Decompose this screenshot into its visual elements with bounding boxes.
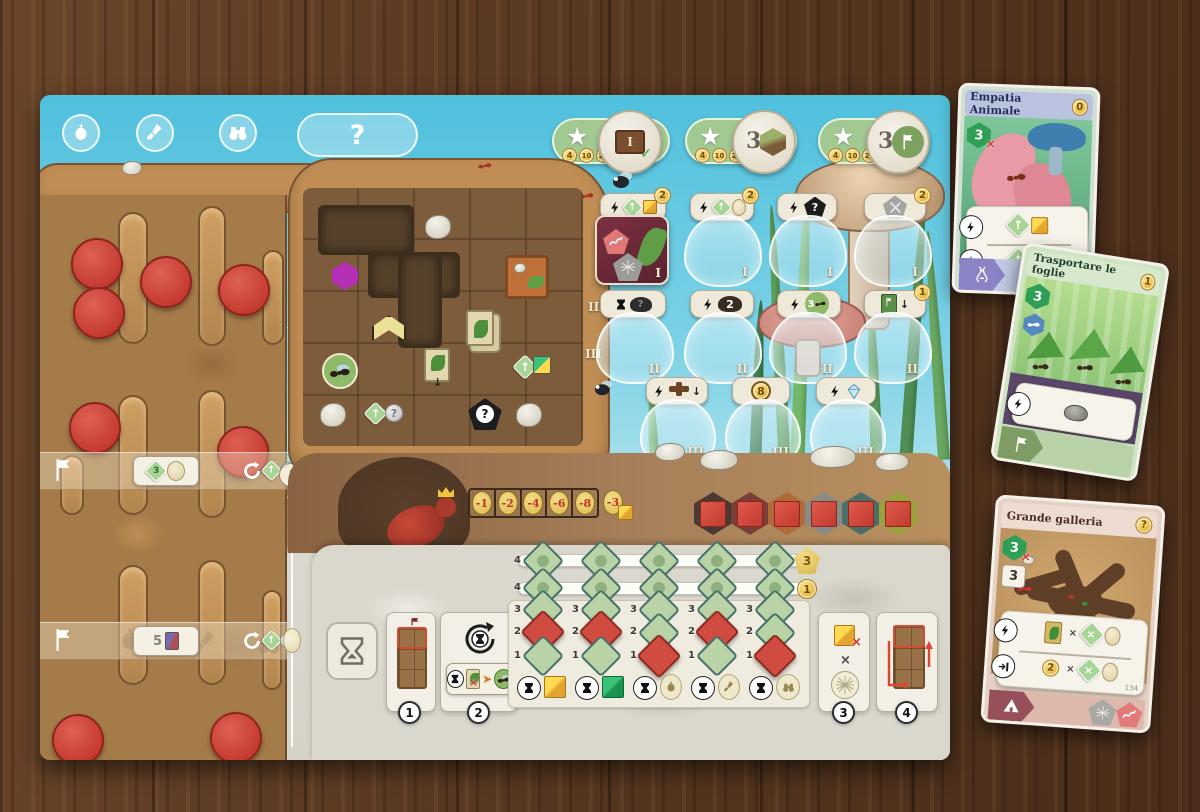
card-title: Grande galleria [1006, 509, 1103, 529]
multiply-sign: × [840, 653, 851, 668]
gem-icon [845, 383, 863, 400]
section-3-panel: × × [818, 612, 870, 712]
hourglass-circle-icon [633, 676, 657, 700]
cocoon-icon [831, 671, 859, 699]
star-icon: ★ [699, 124, 721, 149]
section-4-panel [876, 612, 938, 712]
down-arrow-icon: ↓ [433, 376, 442, 389]
row-value: 1 [630, 650, 637, 661]
fly-icon [592, 377, 616, 397]
slot-numeral: I [912, 265, 918, 279]
card-title: Empatia Animale [970, 90, 1072, 120]
mushroom-stem-blue [1049, 147, 1063, 175]
goal-disc-flags[interactable]: 3 [866, 110, 930, 174]
red-disc-token[interactable] [73, 287, 125, 339]
binoculars-oval-icon [776, 674, 800, 700]
pheromone-pentagon-icon [603, 229, 629, 254]
red-disc-token[interactable] [52, 714, 104, 760]
card-cost-coin: ? [1135, 516, 1153, 534]
rotate-arrow-icon [1016, 583, 1033, 596]
section-2-panel: × ➤ [440, 612, 518, 712]
down-arrow-icon: ↓ [692, 385, 701, 398]
ant-icon [1006, 169, 1026, 184]
cost-coin: 2 [914, 187, 931, 204]
dig-grid[interactable]: ↓ ↑ ↑ ? ? [303, 188, 583, 446]
row-value: 3 [746, 604, 753, 615]
red-tile [811, 501, 837, 527]
bolt-icon [993, 618, 1019, 644]
row-reward-box: 3 [133, 456, 199, 486]
row-value: 4 [514, 555, 521, 566]
penalty-cell[interactable]: -8 [573, 490, 597, 516]
hourglass-circle-icon [575, 676, 599, 700]
winged-ant-token[interactable] [322, 353, 358, 389]
orange-arrow-icon: ➤ [482, 672, 492, 686]
check-icon: ✓ [640, 146, 652, 162]
shovel-action-button[interactable] [136, 114, 174, 152]
row-value: 2 [746, 626, 753, 637]
question-action-button[interactable]: ? [297, 113, 418, 157]
card-footer [987, 689, 1145, 730]
card-slot[interactable]: I [684, 215, 762, 287]
card-cost-coin: 0 [1071, 98, 1088, 116]
x-icon: × [1020, 549, 1031, 564]
tunnel-ant [1082, 602, 1088, 606]
flag-icon [50, 626, 76, 654]
penalty-cell[interactable]: -1 [470, 490, 496, 516]
star-icon: ★ [566, 124, 588, 149]
coin-2: 2 [1042, 659, 1060, 677]
ant-icon [1075, 361, 1095, 376]
penalty-cell[interactable]: -2 [496, 490, 522, 516]
ant-icon [1114, 375, 1134, 390]
question-coin: ? [385, 404, 403, 422]
flagged-grid-card-icon [397, 627, 427, 689]
row-value: 3 [630, 604, 637, 615]
cost-coin: 2 [654, 187, 671, 204]
eggs-icon [167, 461, 185, 481]
yellow-cube-icon [1031, 217, 1048, 234]
goal-disc-card[interactable]: I ✓ [598, 110, 662, 174]
question-icon: ? [476, 405, 494, 423]
card-index: 134 [1124, 684, 1138, 693]
down-arrow-icon: ↓ [900, 298, 909, 311]
two-tone-cube-icon [533, 356, 551, 374]
enter-icon [990, 653, 1016, 679]
divider-line [1019, 650, 1131, 659]
refresh-icon[interactable] [241, 630, 263, 652]
row-value: 4 [514, 582, 521, 593]
slot-numeral: II [822, 362, 833, 376]
excavated-area [318, 205, 414, 255]
stone-cluster [655, 443, 685, 461]
pheromone-pentagon-icon [1115, 701, 1143, 728]
red-disc-token[interactable] [218, 264, 270, 316]
red-tile [774, 501, 800, 527]
row-value: 3 [688, 604, 695, 615]
flag-chevron [997, 426, 1045, 464]
question-icon: ? [350, 120, 366, 151]
house-chevron [987, 689, 1035, 722]
x-icon: × [851, 635, 862, 650]
yellow-cube-icon [643, 200, 657, 214]
tunnel-hex-icon [760, 128, 786, 156]
green-cube-icon [602, 676, 624, 698]
egg-icon [1104, 626, 1121, 646]
penalty-track: -1 -2 -4 -6 -8 [468, 488, 599, 518]
stone-cluster [700, 450, 738, 470]
bolt-icon [702, 297, 715, 312]
row-value: 2 [688, 626, 695, 637]
bolt-icon [653, 384, 666, 399]
row-value: 1 [746, 650, 753, 661]
card-count: 5 [153, 634, 162, 649]
dna-chevron [958, 258, 1005, 292]
stone-cluster [875, 453, 909, 471]
slot-numeral: I [827, 265, 833, 279]
card-icon [165, 632, 179, 650]
row-value: 2 [514, 626, 521, 637]
mystery-pentagon-token[interactable]: ? [468, 398, 502, 430]
red-tile [848, 501, 874, 527]
red-tile [885, 501, 911, 527]
bolt-icon [829, 384, 842, 399]
red-tile [700, 501, 726, 527]
purple-hex-token[interactable] [332, 262, 358, 290]
leaf-diamond-icon: 3 [144, 460, 167, 483]
leaf-card-stack[interactable] [466, 310, 494, 346]
stone-icon [1063, 403, 1089, 423]
step-number-3: 3 [832, 701, 855, 724]
bolt-icon [788, 200, 801, 215]
card-slot[interactable]: II [854, 312, 932, 384]
leaf-icon [431, 355, 445, 371]
yellow-cube-icon [544, 676, 566, 698]
goal-disc-tunnels[interactable]: 3 [732, 110, 796, 174]
hourglass-circle-icon [517, 676, 541, 700]
web-pentagon-icon [1087, 698, 1117, 726]
leaf-icon [474, 320, 488, 338]
coin-badge: 1 [797, 579, 817, 599]
shovel-icon [144, 122, 166, 144]
slot-numeral: II [737, 362, 748, 376]
coin-10: 10 [712, 148, 727, 163]
row-value: 2 [572, 626, 579, 637]
row-value: 3 [514, 604, 521, 615]
egg-track-marker[interactable] [283, 628, 301, 653]
hourglass-icon [337, 633, 367, 669]
carried-leaf [1069, 326, 1114, 366]
hourglass-circle-icon [691, 676, 715, 700]
row-value: 2 [630, 626, 637, 637]
bag-oval-icon [660, 674, 682, 700]
cost-coin: 2 [742, 187, 759, 204]
slot-numeral: II [907, 362, 918, 376]
fly-icon [610, 168, 636, 190]
stone-question-icon: ? [630, 297, 652, 312]
bag-action-button[interactable] [62, 114, 100, 152]
card-slot[interactable]: II [596, 312, 674, 384]
leaf-card-icon [1044, 621, 1062, 644]
leaf-card-token[interactable]: ↓ [424, 348, 450, 382]
bag-icon [70, 122, 92, 144]
coin-10: 10 [579, 148, 594, 163]
egg-icon [1101, 662, 1118, 682]
coin-4: 4 [695, 148, 710, 163]
shovel-oval-icon [718, 674, 740, 700]
dig-row-numeral: II [588, 300, 599, 314]
gallery-cross-icon [669, 382, 689, 400]
star-icon: ★ [832, 124, 854, 149]
bolt-icon [789, 297, 802, 312]
step-number-4: 4 [895, 701, 918, 724]
coin-8: 8 [751, 381, 771, 401]
x-diamond-icon: × [1076, 658, 1101, 683]
pit-leaf-icon [528, 276, 544, 288]
left-tunnel-panel: 3 ↑ ? 5 ↑ ? 4 ↑ ? [40, 195, 287, 760]
game-board: ? ★ 4 10 20 I ✓ ★ 4 10 20 3 ★ 4 10 20 3 [40, 95, 950, 760]
bolt-icon [959, 215, 983, 239]
ant-icon [478, 161, 492, 171]
slot-numeral: II [649, 362, 660, 376]
card-slot[interactable]: II [684, 312, 762, 384]
flag-icon [50, 456, 76, 484]
pit-tile [505, 255, 549, 299]
swap-banner: × ➤ [446, 663, 514, 695]
stone-token[interactable] [320, 403, 346, 427]
red-tile [737, 501, 763, 527]
hourglass-circle-icon [447, 670, 464, 688]
card-slot[interactable]: I [769, 215, 847, 287]
yellow-cube-icon[interactable] [618, 505, 633, 520]
penalty-cell[interactable]: -6 [547, 490, 573, 516]
red-disc-token[interactable] [71, 238, 123, 290]
coin-10: 10 [845, 148, 860, 163]
pit-stone-icon [514, 263, 526, 273]
row-value: 3 [572, 604, 579, 615]
stone-token[interactable] [425, 215, 451, 239]
penalty-cell[interactable]: -4 [522, 490, 548, 516]
dark-flag-icon [407, 617, 423, 631]
row-value: 1 [514, 650, 521, 661]
tabletop-scene: { "icons": {"star":"★","check":"✓","up":… [0, 0, 1200, 812]
stone-value-icon: 2 [718, 296, 742, 312]
binoculars-icon [226, 121, 250, 145]
red-disc-token[interactable] [69, 402, 121, 454]
cost-coin: 1 [914, 284, 931, 301]
stone-cluster [810, 446, 856, 468]
slot-numeral: I [655, 266, 661, 280]
flag-circle-icon [892, 126, 924, 158]
x-diamond-icon: × [1079, 622, 1104, 647]
flag-card-icon [881, 294, 897, 314]
bolt-icon [609, 200, 622, 215]
cycle-arrow-icon [883, 627, 935, 697]
ant-icon [1031, 360, 1051, 375]
red-disc-token[interactable] [140, 256, 192, 308]
queen-ant-head [436, 497, 456, 517]
step-number-2: 2 [467, 701, 490, 724]
tunnel-count: 3 [746, 128, 761, 154]
hourglass-circle-icon [749, 676, 773, 700]
played-card-mantis[interactable]: I [595, 215, 669, 285]
slot-numeral: I [742, 265, 748, 279]
bolt-icon [698, 200, 711, 215]
row-value: 1 [572, 650, 579, 661]
multiply-sign: × [1068, 628, 1077, 640]
leaf-card-x-icon: × [466, 669, 480, 689]
upgrade-diamond-icon: ↑ [1005, 212, 1030, 237]
red-disc-token[interactable] [210, 712, 262, 760]
binoculars-action-button[interactable] [219, 114, 257, 152]
hourglass-icon [615, 297, 627, 312]
refresh-icon[interactable] [241, 460, 263, 482]
card-slot[interactable]: II [769, 312, 847, 384]
stone-token[interactable] [516, 403, 542, 427]
row-value: 1 [688, 650, 695, 661]
coin-4: 4 [828, 148, 843, 163]
card-grande-galleria[interactable]: Grande galleria ? 3 × 3 × × 2 × × 134 [980, 494, 1165, 733]
hourglass-tile [326, 622, 378, 680]
upgrade-diamond-icon: ↑ [363, 401, 387, 425]
row-reward-box: 5 [133, 626, 199, 656]
multiply-sign: × [1066, 664, 1075, 676]
cycle-hourglass-icon [460, 619, 500, 659]
card-cost-coin: 1 [1139, 272, 1157, 291]
section-1-panel [386, 612, 436, 712]
card-slot[interactable]: I [854, 215, 932, 287]
effect-banner: × × 2 × × 134 [996, 610, 1149, 696]
x-icon: × [985, 137, 996, 151]
pebble [122, 161, 142, 175]
step-number-1: 1 [398, 701, 421, 724]
